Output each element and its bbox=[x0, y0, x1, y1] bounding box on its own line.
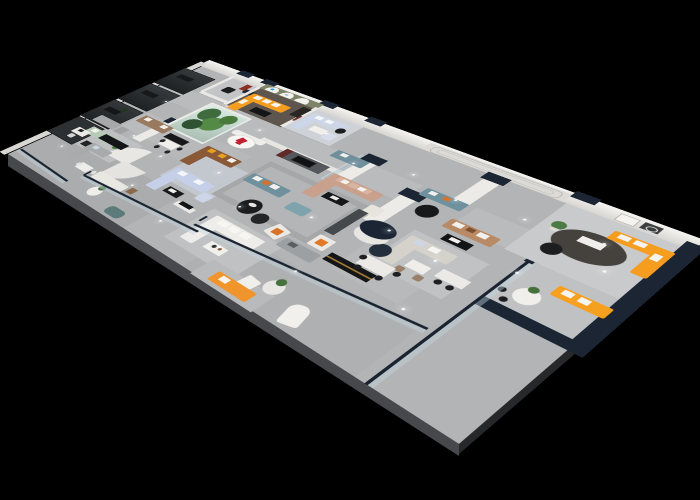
dining-nw-chair-3 bbox=[153, 145, 161, 149]
spotlight-glint-19 bbox=[158, 220, 162, 222]
spotlight-glint-24 bbox=[401, 307, 406, 310]
showroom-floorplan-render bbox=[0, 0, 700, 500]
spotlight-glint-11 bbox=[159, 155, 163, 157]
spotlight-glint-6 bbox=[411, 174, 415, 176]
spotlight-glint-8 bbox=[522, 218, 527, 221]
